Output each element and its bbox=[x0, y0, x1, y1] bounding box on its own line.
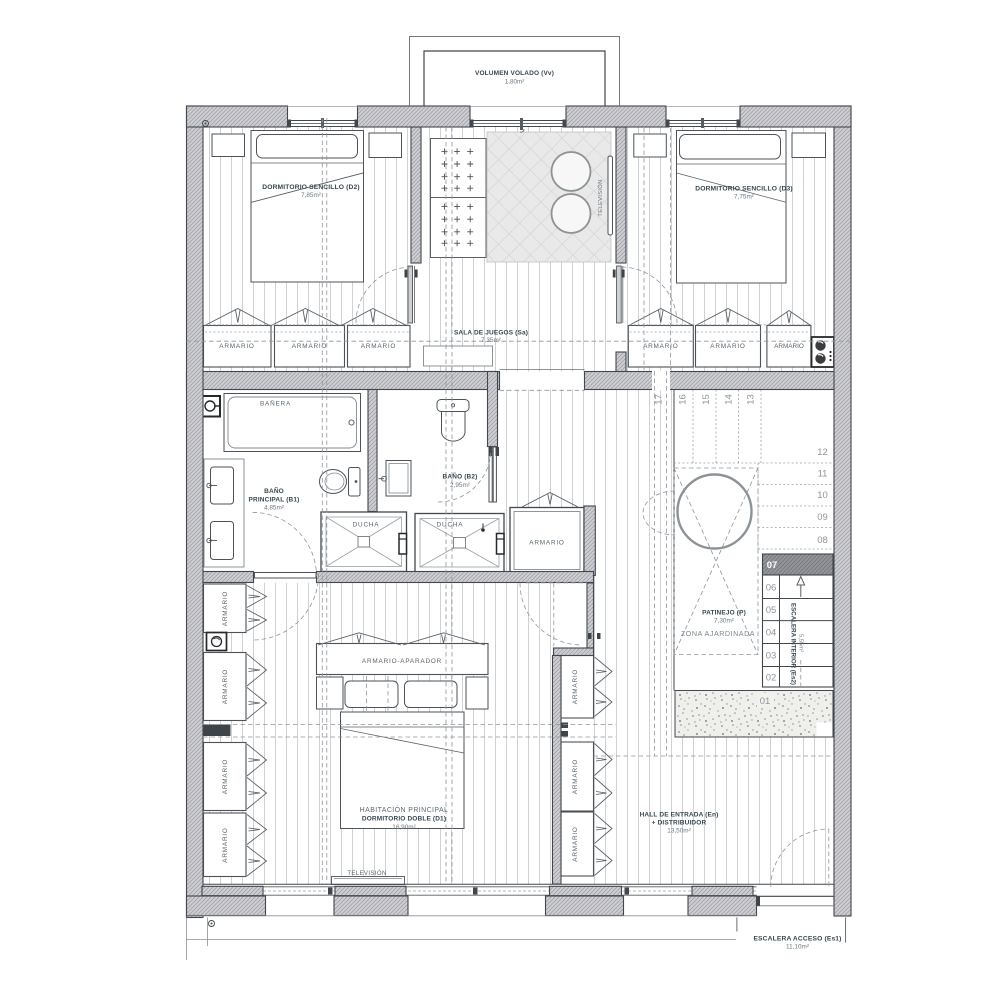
svg-text:ARMARIO: ARMARIO bbox=[529, 540, 564, 547]
svg-text:07: 07 bbox=[767, 560, 778, 571]
svg-text:ARMARIO: ARMARIO bbox=[222, 591, 229, 626]
svg-text:DORMITORIO SENCILLO (D3): DORMITORIO SENCILLO (D3) bbox=[695, 186, 792, 193]
svg-text:ARMARIO: ARMARIO bbox=[222, 759, 229, 794]
svg-text:11,10m²: 11,10m² bbox=[786, 944, 809, 951]
svg-text:ARMARIO: ARMARIO bbox=[361, 343, 396, 350]
svg-text:SALA DE JUEGOS (Sa): SALA DE JUEGOS (Sa) bbox=[454, 330, 528, 337]
svg-text:TELEVISIÓN: TELEVISIÓN bbox=[597, 179, 604, 216]
svg-text:DUCHA: DUCHA bbox=[437, 522, 464, 529]
svg-text:02: 02 bbox=[766, 673, 777, 684]
svg-text:04: 04 bbox=[766, 628, 777, 639]
svg-text:BAÑO: BAÑO bbox=[264, 486, 284, 495]
svg-text:ESCALERA ACCESO (Es1): ESCALERA ACCESO (Es1) bbox=[753, 936, 841, 943]
svg-text:4,85m²: 4,85m² bbox=[264, 505, 284, 512]
svg-text:16: 16 bbox=[678, 394, 689, 405]
svg-text:HABITACIÓN PRINCIPAL: HABITACIÓN PRINCIPAL bbox=[360, 805, 449, 814]
svg-text:01: 01 bbox=[760, 696, 771, 707]
svg-text:7,85m²: 7,85m² bbox=[301, 192, 321, 199]
svg-text:7,35m²: 7,35m² bbox=[481, 337, 501, 344]
svg-text:ZONA AJARDINADA: ZONA AJARDINADA bbox=[681, 629, 755, 638]
svg-text:ARMARIO: ARMARIO bbox=[222, 669, 229, 704]
svg-text:5,55m²: 5,55m² bbox=[798, 634, 804, 652]
svg-text:1,80m²: 1,80m² bbox=[505, 79, 525, 86]
svg-text:10: 10 bbox=[817, 490, 828, 501]
svg-text:PATINEJO (P): PATINEJO (P) bbox=[702, 610, 746, 617]
svg-text:ARMARIO: ARMARIO bbox=[219, 343, 254, 350]
svg-text:17: 17 bbox=[654, 394, 665, 405]
svg-text:7,75m²: 7,75m² bbox=[734, 194, 754, 201]
svg-text:ARMARIO: ARMARIO bbox=[774, 343, 804, 350]
svg-text:ARMARIO: ARMARIO bbox=[710, 343, 745, 350]
svg-text:08: 08 bbox=[817, 535, 828, 546]
svg-text:15: 15 bbox=[701, 394, 712, 405]
svg-text:DUCHA: DUCHA bbox=[353, 522, 380, 529]
svg-text:DORMITORIO DOBLE (D1): DORMITORIO DOBLE (D1) bbox=[362, 816, 446, 823]
svg-text:11: 11 bbox=[818, 469, 828, 480]
svg-text:HALL DE ENTRADA (En): HALL DE ENTRADA (En) bbox=[640, 812, 719, 819]
svg-text:DORMITORIO SENCILLO (D2): DORMITORIO SENCILLO (D2) bbox=[262, 184, 359, 191]
svg-text:13: 13 bbox=[746, 394, 757, 405]
svg-text:06: 06 bbox=[766, 583, 777, 594]
svg-text:ARMARIO: ARMARIO bbox=[572, 669, 579, 704]
svg-text:BAÑERA: BAÑERA bbox=[260, 399, 291, 408]
svg-text:TELEVISIÓN: TELEVISIÓN bbox=[347, 870, 386, 877]
svg-text:05: 05 bbox=[766, 605, 777, 616]
svg-text:2,95m²: 2,95m² bbox=[450, 482, 470, 489]
svg-text:BAÑO (B2): BAÑO (B2) bbox=[443, 472, 478, 481]
svg-text:7,30m²: 7,30m² bbox=[714, 618, 734, 625]
svg-text:13,50m²: 13,50m² bbox=[667, 828, 690, 835]
svg-text:09: 09 bbox=[817, 512, 828, 523]
svg-text:14: 14 bbox=[724, 394, 735, 405]
svg-text:ARMARIO: ARMARIO bbox=[643, 343, 678, 350]
svg-text:ESCALERA INTERIOR (Es2): ESCALERA INTERIOR (Es2) bbox=[790, 603, 797, 685]
svg-text:PRINCIPAL (B1): PRINCIPAL (B1) bbox=[249, 497, 300, 504]
svg-text:03: 03 bbox=[766, 651, 777, 662]
svg-text:VOLUMEN VOLADO (Vv): VOLUMEN VOLADO (Vv) bbox=[475, 70, 554, 77]
svg-text:ARMARIO: ARMARIO bbox=[572, 759, 579, 794]
svg-text:12: 12 bbox=[817, 447, 828, 458]
svg-text:ARMARIO-APARADOR: ARMARIO-APARADOR bbox=[362, 658, 442, 665]
svg-text:+ DISTRIBUIDOR: + DISTRIBUIDOR bbox=[652, 820, 707, 827]
svg-text:ARMARIO: ARMARIO bbox=[222, 827, 229, 862]
svg-text:ARMARIO: ARMARIO bbox=[572, 826, 579, 861]
svg-text:16,90m²: 16,90m² bbox=[392, 824, 415, 831]
